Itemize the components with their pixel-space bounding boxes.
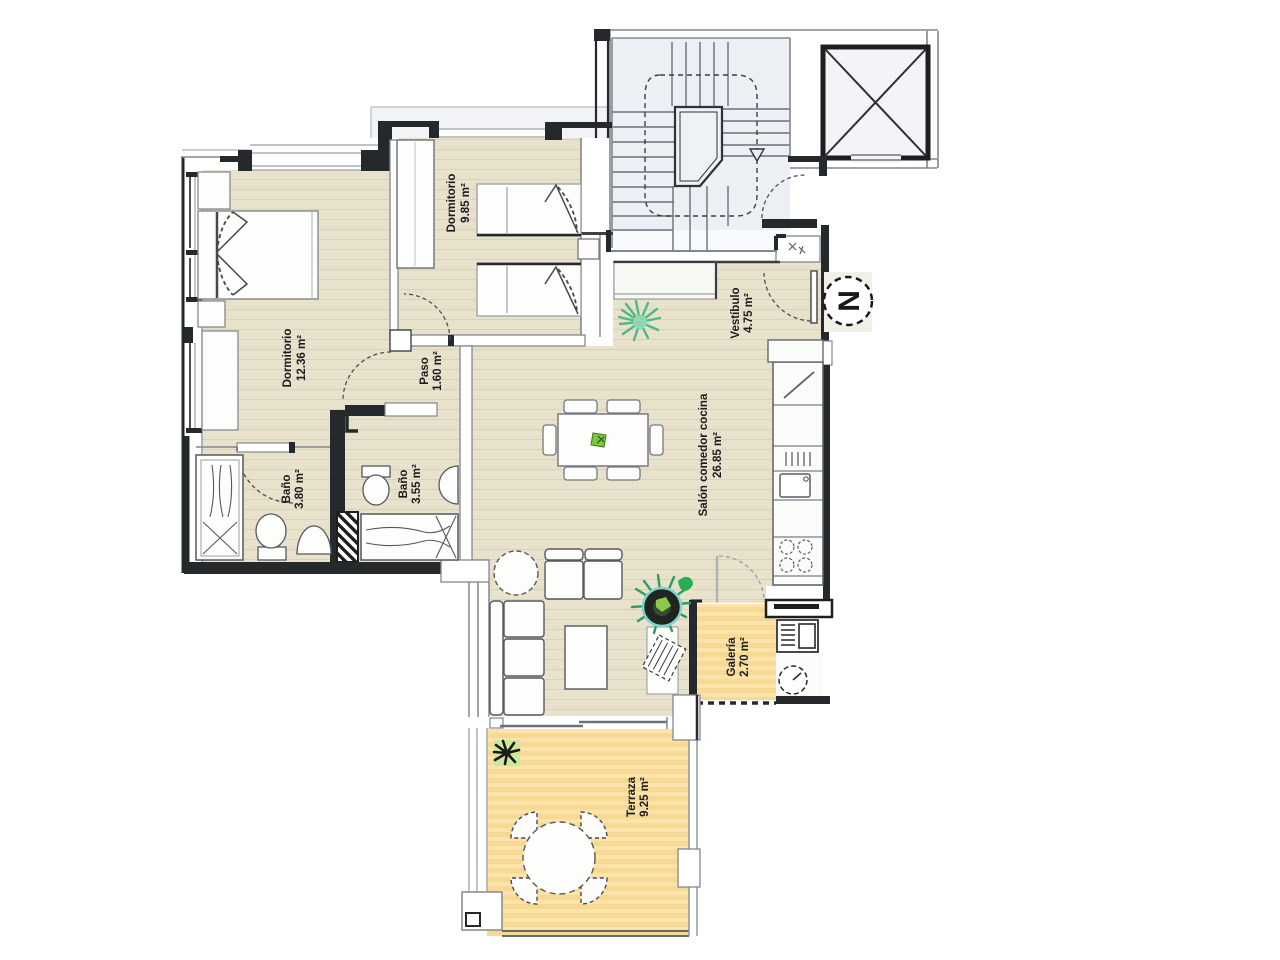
svg-text:26.85 m²: 26.85 m² [712,432,724,478]
svg-text:4.75 m²: 4.75 m² [743,293,755,333]
svg-text:Dormitorio: Dormitorio [446,174,458,233]
svg-text:Dormitorio: Dormitorio [282,329,294,388]
svg-text:12.36 m²: 12.36 m² [296,335,308,381]
svg-text:3.80 m²: 3.80 m² [294,469,306,509]
svg-text:Baño: Baño [398,470,410,499]
svg-text:Terraza: Terraza [626,776,638,817]
svg-text:9.25 m²: 9.25 m² [639,777,651,817]
svg-text:Galería: Galería [726,637,738,677]
svg-text:N: N [832,290,865,312]
svg-text:9.85 m²: 9.85 m² [460,183,472,223]
svg-text:Paso: Paso [419,357,431,385]
svg-text:Salón comedor cocina: Salón comedor cocina [698,393,710,516]
svg-text:3.55 m²: 3.55 m² [411,464,423,504]
svg-text:Vestíbulo: Vestíbulo [730,287,742,338]
svg-text:Baño: Baño [281,475,293,504]
svg-text:2.70 m²: 2.70 m² [739,637,751,677]
svg-text:1.60 m²: 1.60 m² [432,351,444,391]
